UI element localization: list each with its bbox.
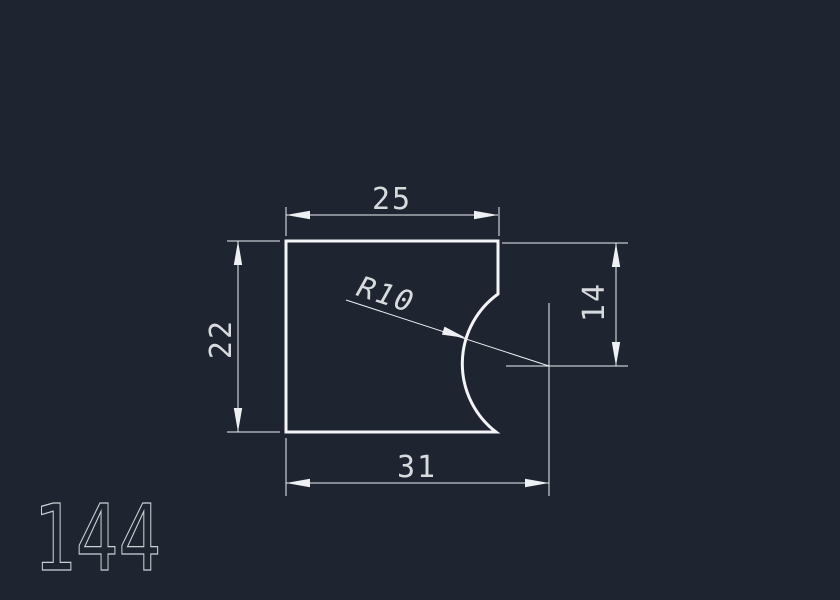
dimension-text-top: 25 <box>372 182 412 217</box>
arrowhead-up-icon <box>234 241 242 265</box>
radius-leader: R10 <box>346 269 549 366</box>
arrowhead-up-icon <box>612 243 620 267</box>
dimension-top-width: 25 <box>286 182 499 236</box>
dimension-left-height: 22 <box>204 241 280 432</box>
arrowhead-down-icon <box>234 408 242 432</box>
arrowhead-leader-icon <box>442 327 466 338</box>
arrowhead-down-icon <box>612 342 620 366</box>
part-outline <box>286 241 498 432</box>
dimension-text-right: 14 <box>577 282 612 322</box>
radius-text: R10 <box>353 269 419 319</box>
dimension-right-offset: 14 <box>502 243 628 366</box>
arrowhead-right-icon <box>525 479 549 487</box>
drawing-number: 144 <box>33 485 161 592</box>
dimension-text-bottom: 31 <box>397 450 437 485</box>
cad-viewport[interactable]: 25 22 14 31 <box>0 0 840 600</box>
cad-canvas[interactable]: 25 22 14 31 <box>0 0 840 600</box>
arrowhead-right-icon <box>474 211 498 219</box>
arrowhead-left-icon <box>286 211 310 219</box>
dimension-bottom-width: 31 <box>286 303 549 496</box>
arrowhead-left-icon <box>286 479 310 487</box>
dimension-text-left: 22 <box>204 319 239 359</box>
